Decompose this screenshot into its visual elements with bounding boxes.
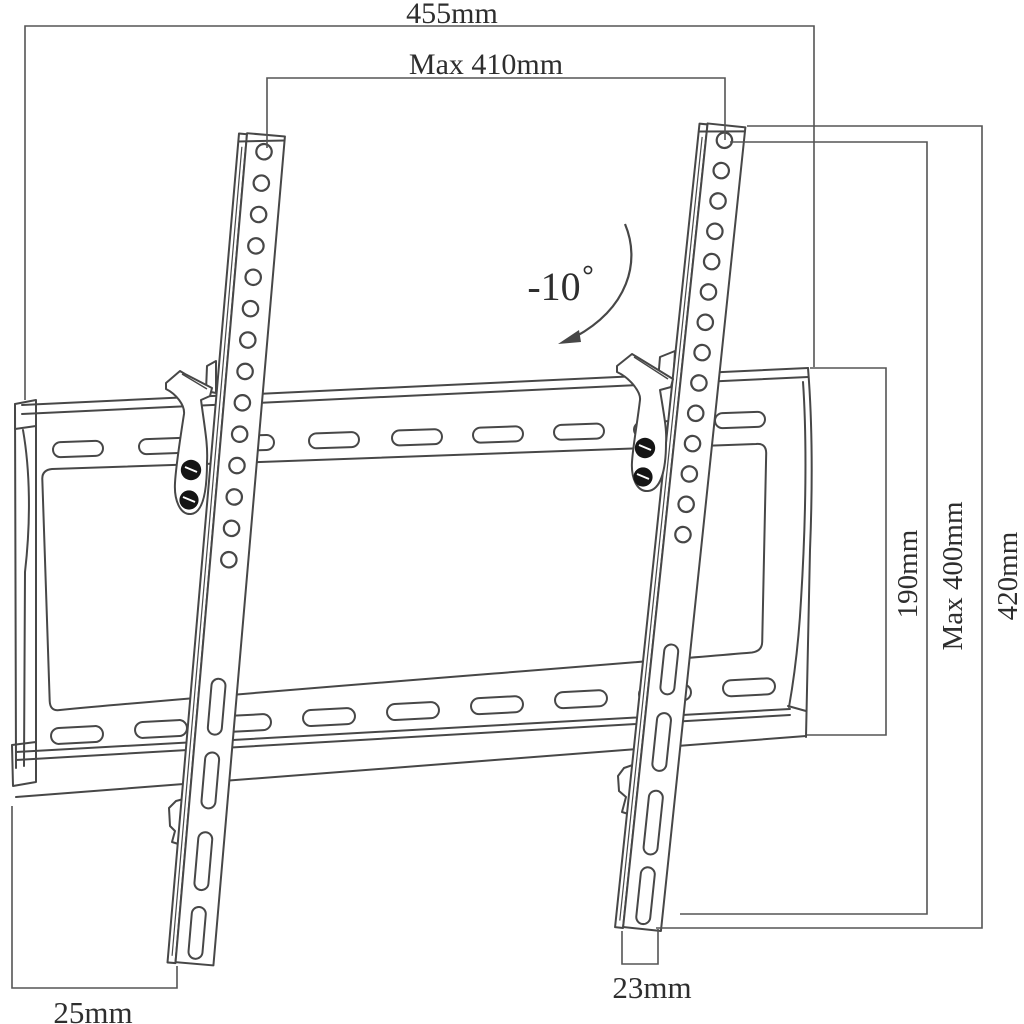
svg-text:190mm: 190mm <box>892 529 924 618</box>
svg-text:-10: -10 <box>527 264 580 309</box>
svg-text:420mm: 420mm <box>992 531 1024 620</box>
svg-text:455mm: 455mm <box>406 0 498 30</box>
svg-text:Max 400mm: Max 400mm <box>937 501 969 650</box>
svg-text:Max 410mm: Max 410mm <box>409 48 563 81</box>
svg-text:25mm: 25mm <box>53 995 132 1024</box>
svg-text:23mm: 23mm <box>612 970 691 1005</box>
